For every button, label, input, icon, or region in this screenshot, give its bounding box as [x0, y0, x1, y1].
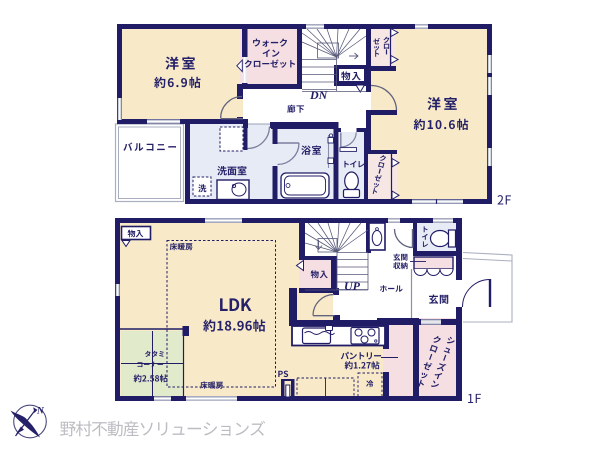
svg-text:N: N [36, 407, 45, 417]
svg-text:DN: DN [309, 88, 329, 102]
svg-text:UP: UP [344, 279, 361, 293]
